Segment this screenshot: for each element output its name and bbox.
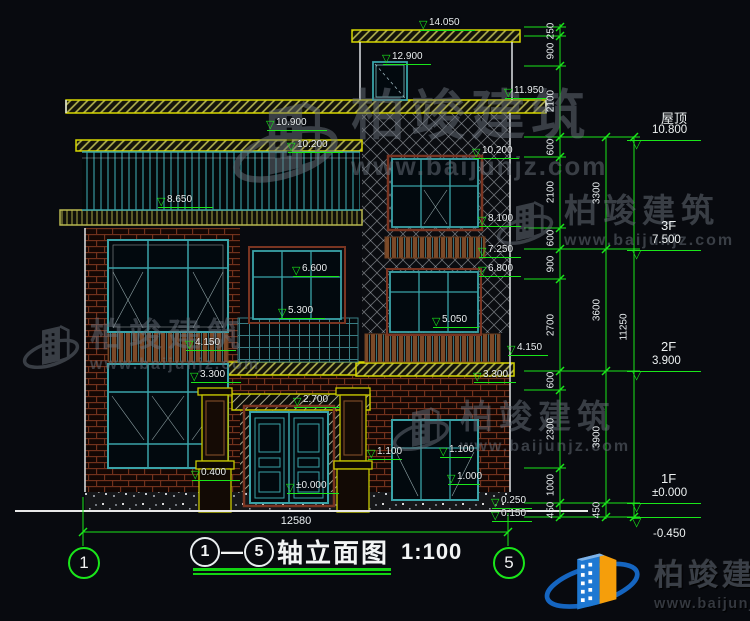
dimension-value: 900 [546,43,557,60]
level-line [508,355,548,356]
dimension-value: 600 [546,139,557,156]
dimension-value: 900 [546,256,557,273]
window-right-1f [392,420,478,500]
level-line [479,276,521,277]
level-line [440,457,472,458]
level-triangle-icon: ▽ [632,501,641,513]
dimension-number: 450 [592,502,603,519]
elevation-value: 1.100 [449,444,474,455]
dimension-number: 2300 [546,418,557,440]
axis-number: 5 [504,553,513,573]
title-dash: — [221,539,243,565]
elevation-value: 0.400 [201,467,226,478]
dimension-number: 1000 [546,474,557,496]
level-line [474,382,516,383]
dimension-number: 600 [546,230,557,247]
level-triangle-icon: ▽ [632,138,641,150]
level-line [383,64,431,65]
dimension-value: 600 [546,230,557,247]
floor-elevation: ±0.000 [652,487,687,499]
floor-elevation: 3.900 [652,355,681,367]
elevation-value: 6.800 [488,263,513,274]
elevation-value: 6.600 [302,263,327,274]
dimension-number: 900 [546,43,557,60]
elevation-value: 8.650 [167,194,192,205]
elevation-value: 4.150 [517,342,542,353]
elevation-value: 7.250 [488,244,513,255]
level-line [288,152,343,153]
drawing-title: 1 — 5 轴立面图 1:100 [190,533,462,570]
floor-name: 1F [661,471,676,486]
dimension-number: 3900 [592,426,603,448]
dimension-value: 600 [546,372,557,389]
level-line [479,226,521,227]
elevation-value: 3.300 [200,369,225,380]
title-text: 轴立面图 [277,533,389,570]
balcony-railing [238,318,358,362]
elevation-value: 3.300 [483,369,508,380]
title-axis-from: 1 [190,537,220,567]
level-line [433,327,479,328]
dimension-number: 600 [546,139,557,156]
dimension-value: 2100 [546,90,557,112]
axis-bubble: 1 [68,547,100,579]
dimension-value: 2700 [546,314,557,336]
dimension-value: 250 [546,23,557,40]
dimension-number: 3600 [592,299,603,321]
brand-name: 柏竣建筑 [654,550,750,594]
floor-elevation: 10.800 [652,124,687,136]
dimension-value: 3300 [592,182,603,204]
dimension-number: 2100 [546,90,557,112]
elevation-value: 5.300 [288,305,313,316]
floor-name: 3F [661,218,676,233]
elevation-value: 10.200 [482,145,513,156]
level-line [267,130,327,131]
floor-elevation: 7.500 [652,234,681,246]
elevation-value: 1.100 [377,446,402,457]
level-line [420,30,475,31]
below-datum-value: -0.450 [653,528,686,540]
level-line [368,459,402,460]
dimension-value: 1000 [546,474,557,496]
elevation-value: 12.900 [392,51,423,62]
brand-logo: 柏竣建筑 www.baijunjz.com [538,545,750,617]
cad-elevation-sheet: 柏竣建筑 www.baijunjz.com 柏竣建筑 www.baijunjz.… [0,0,750,621]
dimension-value: 2300 [546,418,557,440]
level-line [479,257,521,258]
dimension-value: 2100 [546,181,557,203]
terrace-railing [82,152,360,210]
axis-number: 1 [79,553,88,573]
floor-name: 2F [661,339,676,354]
title-scale: 1:100 [401,539,462,565]
dimension-number: 900 [546,256,557,273]
level-line [473,158,519,159]
elevation-value: 4.150 [195,337,220,348]
level-line [287,493,339,494]
elevation-value: 8.100 [488,213,513,224]
dimension-number: 11250 [619,313,630,340]
level-line [492,521,532,522]
level-line [186,350,236,351]
dimension-value: 3600 [592,299,603,321]
level-line [293,276,339,277]
dimension-number: 3300 [592,182,603,204]
dimension-number: 2100 [546,181,557,203]
level-triangle-icon: ▽ [632,369,641,381]
level-line [448,484,480,485]
elevation-value: 10.900 [276,117,307,128]
dimension-number: 450 [546,502,557,519]
elevation-value: 0.250 [501,495,526,506]
level-line [158,207,213,208]
level-line [505,98,547,99]
overall-width-dimension: 12580 [262,515,330,527]
level-triangle-icon: ▽ [632,248,641,260]
window-left-upper [108,240,228,332]
title-underline [193,568,391,571]
stair-window [373,62,407,100]
axis-bubble: 5 [493,547,525,579]
dimension-number: 250 [546,23,557,40]
dimension-number: 600 [546,372,557,389]
level-line [294,407,340,408]
title-axis-to: 5 [244,537,274,567]
brand-logo-icon [538,545,650,617]
dimension-value: 11250 [619,313,630,340]
level-line [192,480,240,481]
brand-url: www.baijunjz.com [654,596,750,612]
elevation-value: ±0.000 [296,480,327,491]
title-underline [193,573,391,575]
dimension-value: 450 [592,502,603,519]
elevation-value: 2.700 [303,394,328,405]
dimension-value: 3900 [592,426,603,448]
level-triangle-icon: ▽ [632,516,641,528]
dimension-number: 2700 [546,314,557,336]
level-line [191,382,241,383]
elevation-value: 10.200 [297,139,328,150]
window-right-3f [388,156,482,230]
elevation-value: 5.050 [442,314,467,325]
elevation-value: 1.000 [457,471,482,482]
dimension-value: 450 [546,502,557,519]
level-line [279,318,325,319]
elevation-value: 11.950 [514,85,544,96]
elevation-value: 14.050 [429,17,460,28]
elevation-value: 0.150 [501,508,526,519]
